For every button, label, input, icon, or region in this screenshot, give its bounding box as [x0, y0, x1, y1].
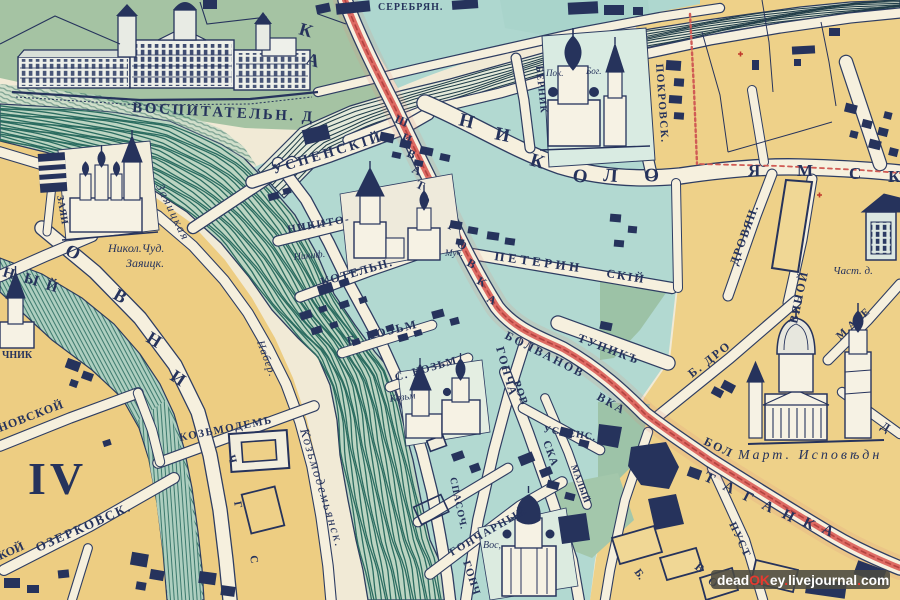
svg-text:Л: Л: [603, 165, 619, 187]
svg-text:О: О: [644, 165, 660, 187]
svg-text:С: С: [849, 164, 861, 183]
svg-text:Част. д.: Част. д.: [833, 265, 873, 277]
svg-text:Заяицк.: Заяицк.: [126, 256, 164, 270]
svg-text:ЧНИК: ЧНИК: [2, 350, 33, 361]
svg-text:IV: IV: [28, 453, 87, 504]
svg-text:СЕРЕБРЯН.: СЕРЕБРЯН.: [378, 2, 443, 13]
svg-text:Бог.: Бог.: [585, 66, 601, 76]
svg-text:О: О: [571, 165, 589, 188]
svg-text:Муч.: Муч.: [444, 248, 463, 258]
svg-text:Март. Исповѣдн: Март. Исповѣдн: [737, 448, 882, 463]
svg-text:К: К: [888, 167, 900, 186]
svg-text:deadOKey.livejournal.com: deadOKey.livejournal.com: [717, 573, 889, 588]
svg-text:Пок.: Пок.: [545, 68, 563, 78]
svg-text:Вос,: Вос,: [483, 540, 501, 551]
svg-text:Я: Я: [748, 161, 760, 180]
svg-text:М: М: [797, 161, 813, 180]
svg-text:Никол.Чуд.: Никол.Чуд.: [107, 241, 164, 255]
